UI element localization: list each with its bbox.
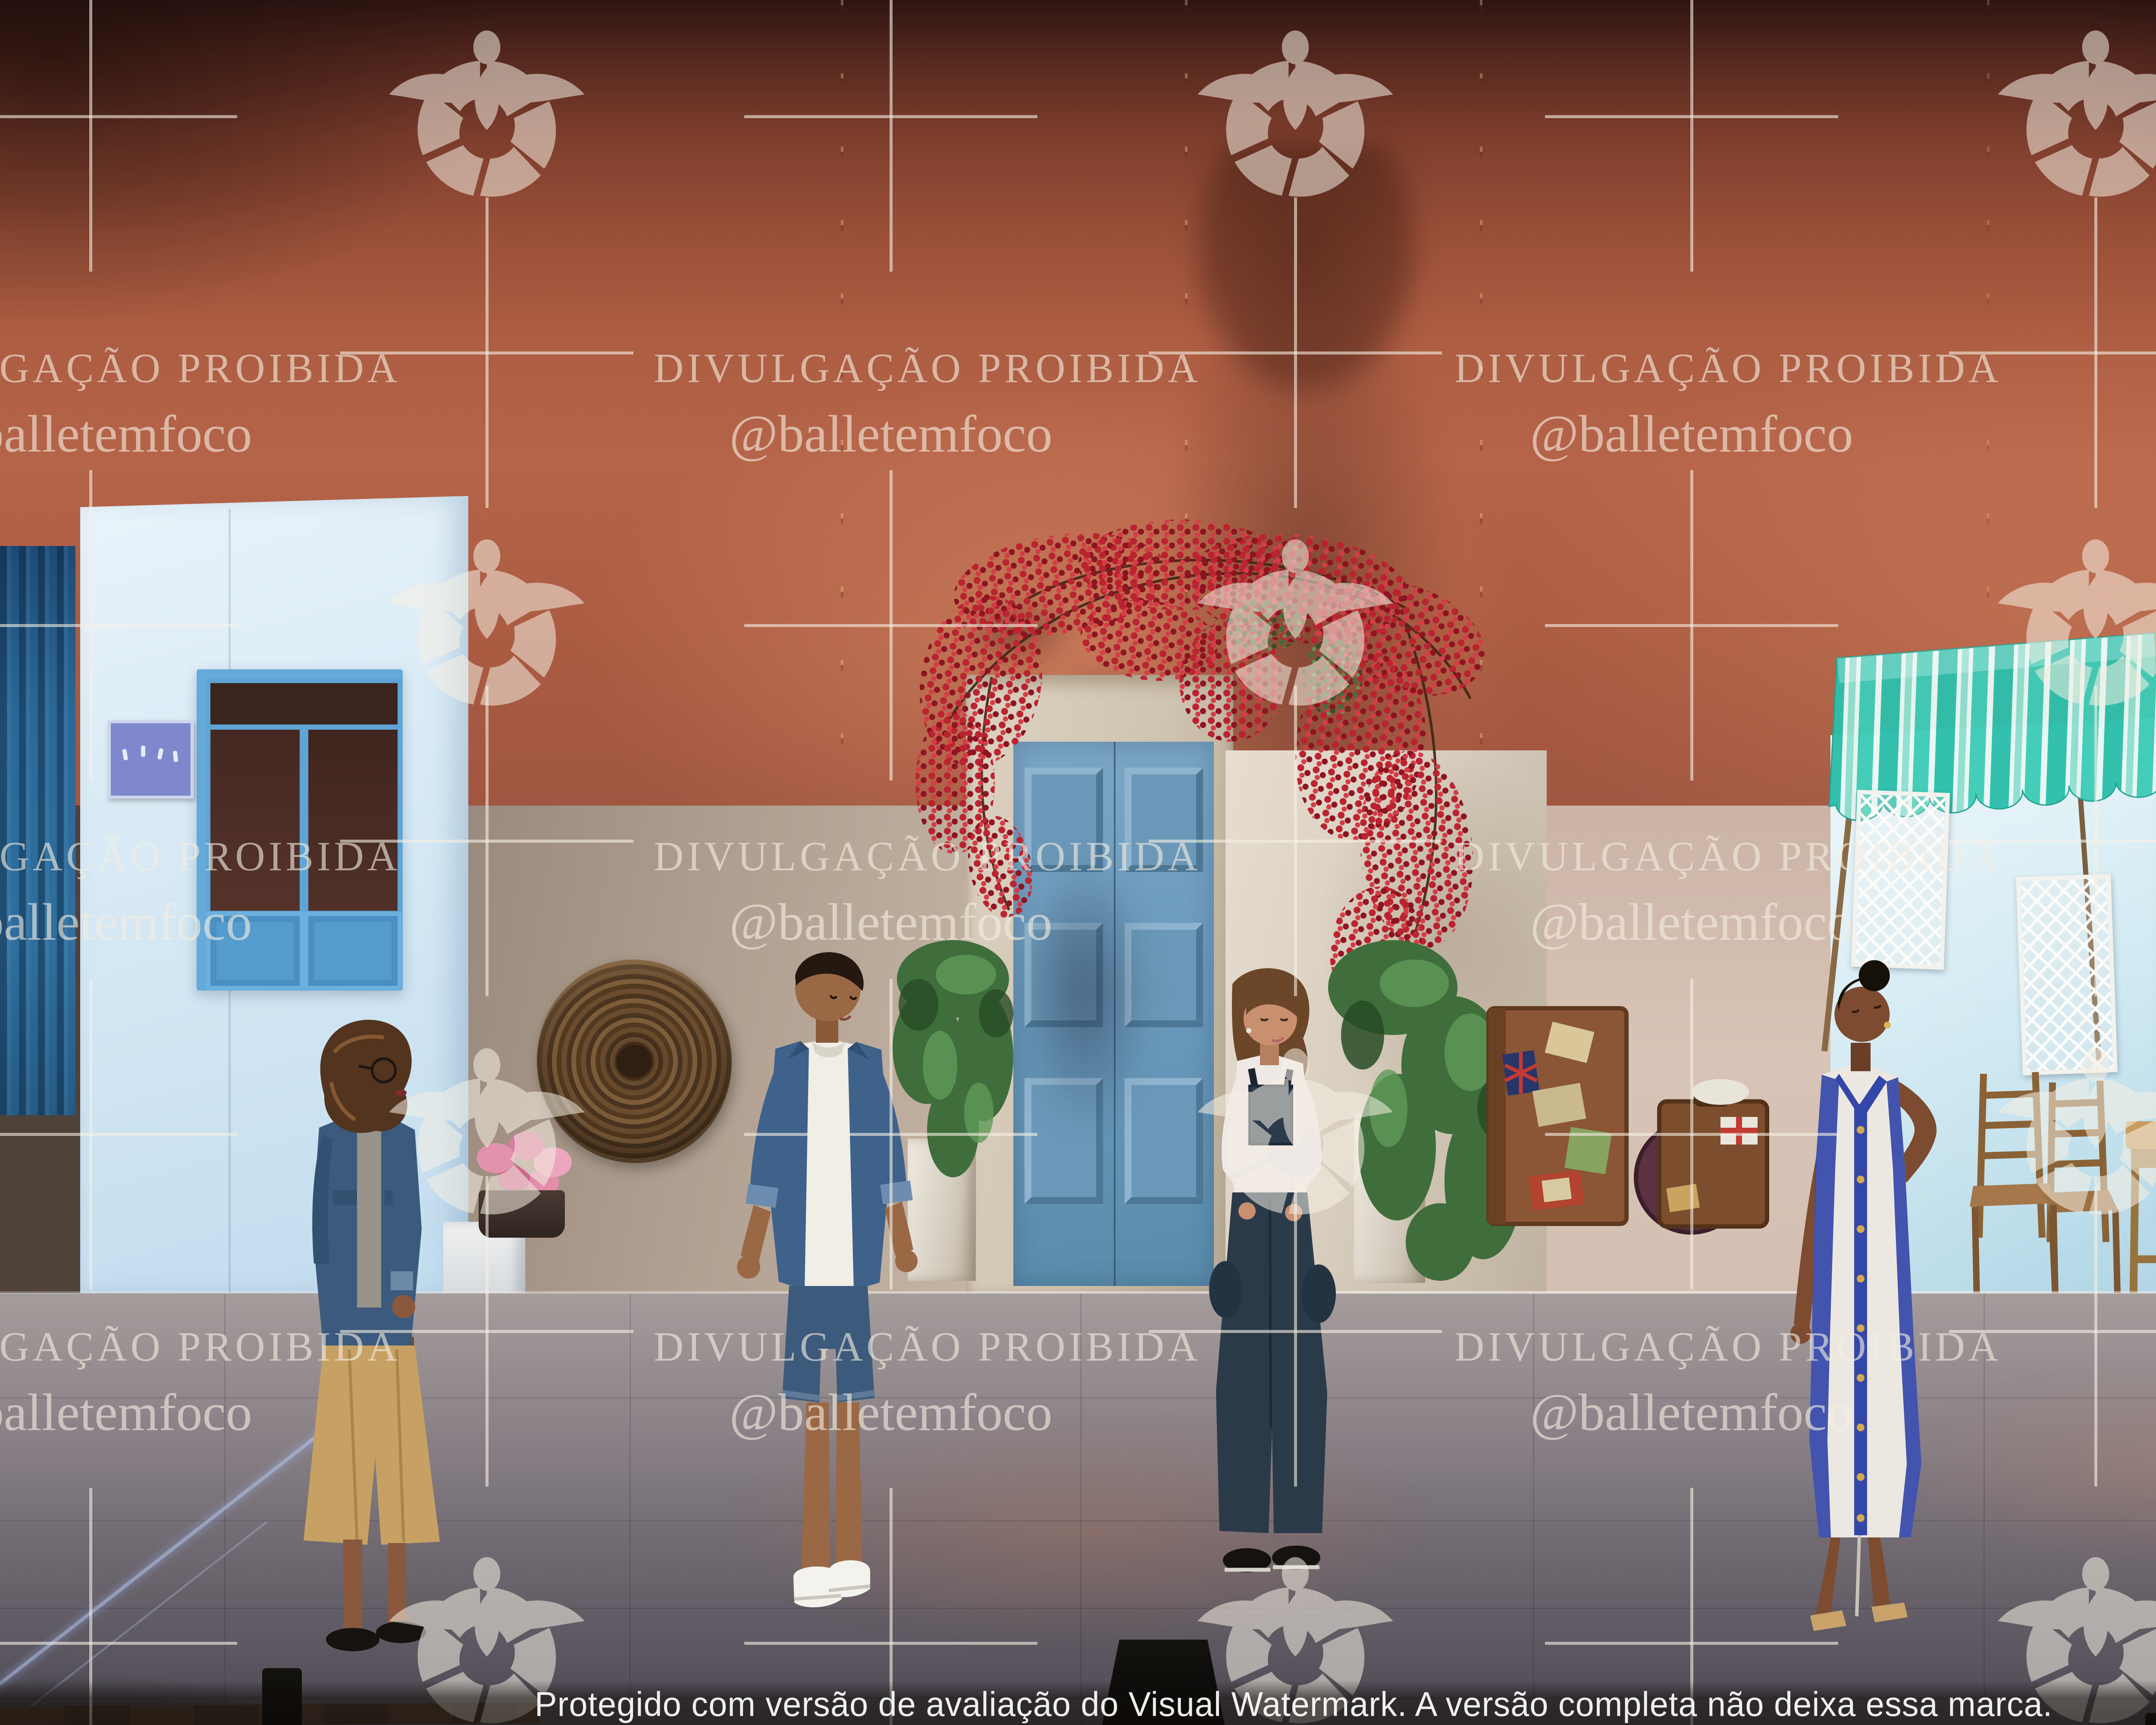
performer-4 — [1751, 944, 1966, 1660]
lattice-panel — [1851, 790, 1950, 969]
floor-seam — [1984, 1294, 1985, 1725]
lattice-panel — [2016, 874, 2118, 1075]
floor-seam — [1080, 1294, 1081, 1725]
flower-pot — [479, 1190, 565, 1238]
watermark-trial-notice: Protegido com versão de avaliação do Vis… — [39, 1684, 2156, 1724]
performer-1 — [259, 1005, 457, 1673]
window-pane — [304, 725, 402, 915]
window-lower-panel — [206, 912, 304, 990]
performer-3 — [1181, 957, 1350, 1596]
vintage-suitcases — [1479, 1000, 1781, 1242]
window-pane — [206, 725, 304, 915]
window-lower-panel — [304, 912, 402, 990]
floor-seam — [1533, 1294, 1534, 1725]
left-blue-window — [197, 669, 403, 991]
blue-wall-picture — [108, 720, 194, 799]
weathered-blue-door — [0, 546, 75, 1115]
wall-seam-lights — [841, 0, 843, 811]
stage-photograph: DIVULGAÇÃO PROIBIDA@balletemfocoDIVULGAÇ… — [0, 0, 2156, 1725]
floor-seam — [630, 1294, 631, 1725]
performer-2 — [699, 931, 940, 1643]
window-transom — [206, 679, 402, 729]
